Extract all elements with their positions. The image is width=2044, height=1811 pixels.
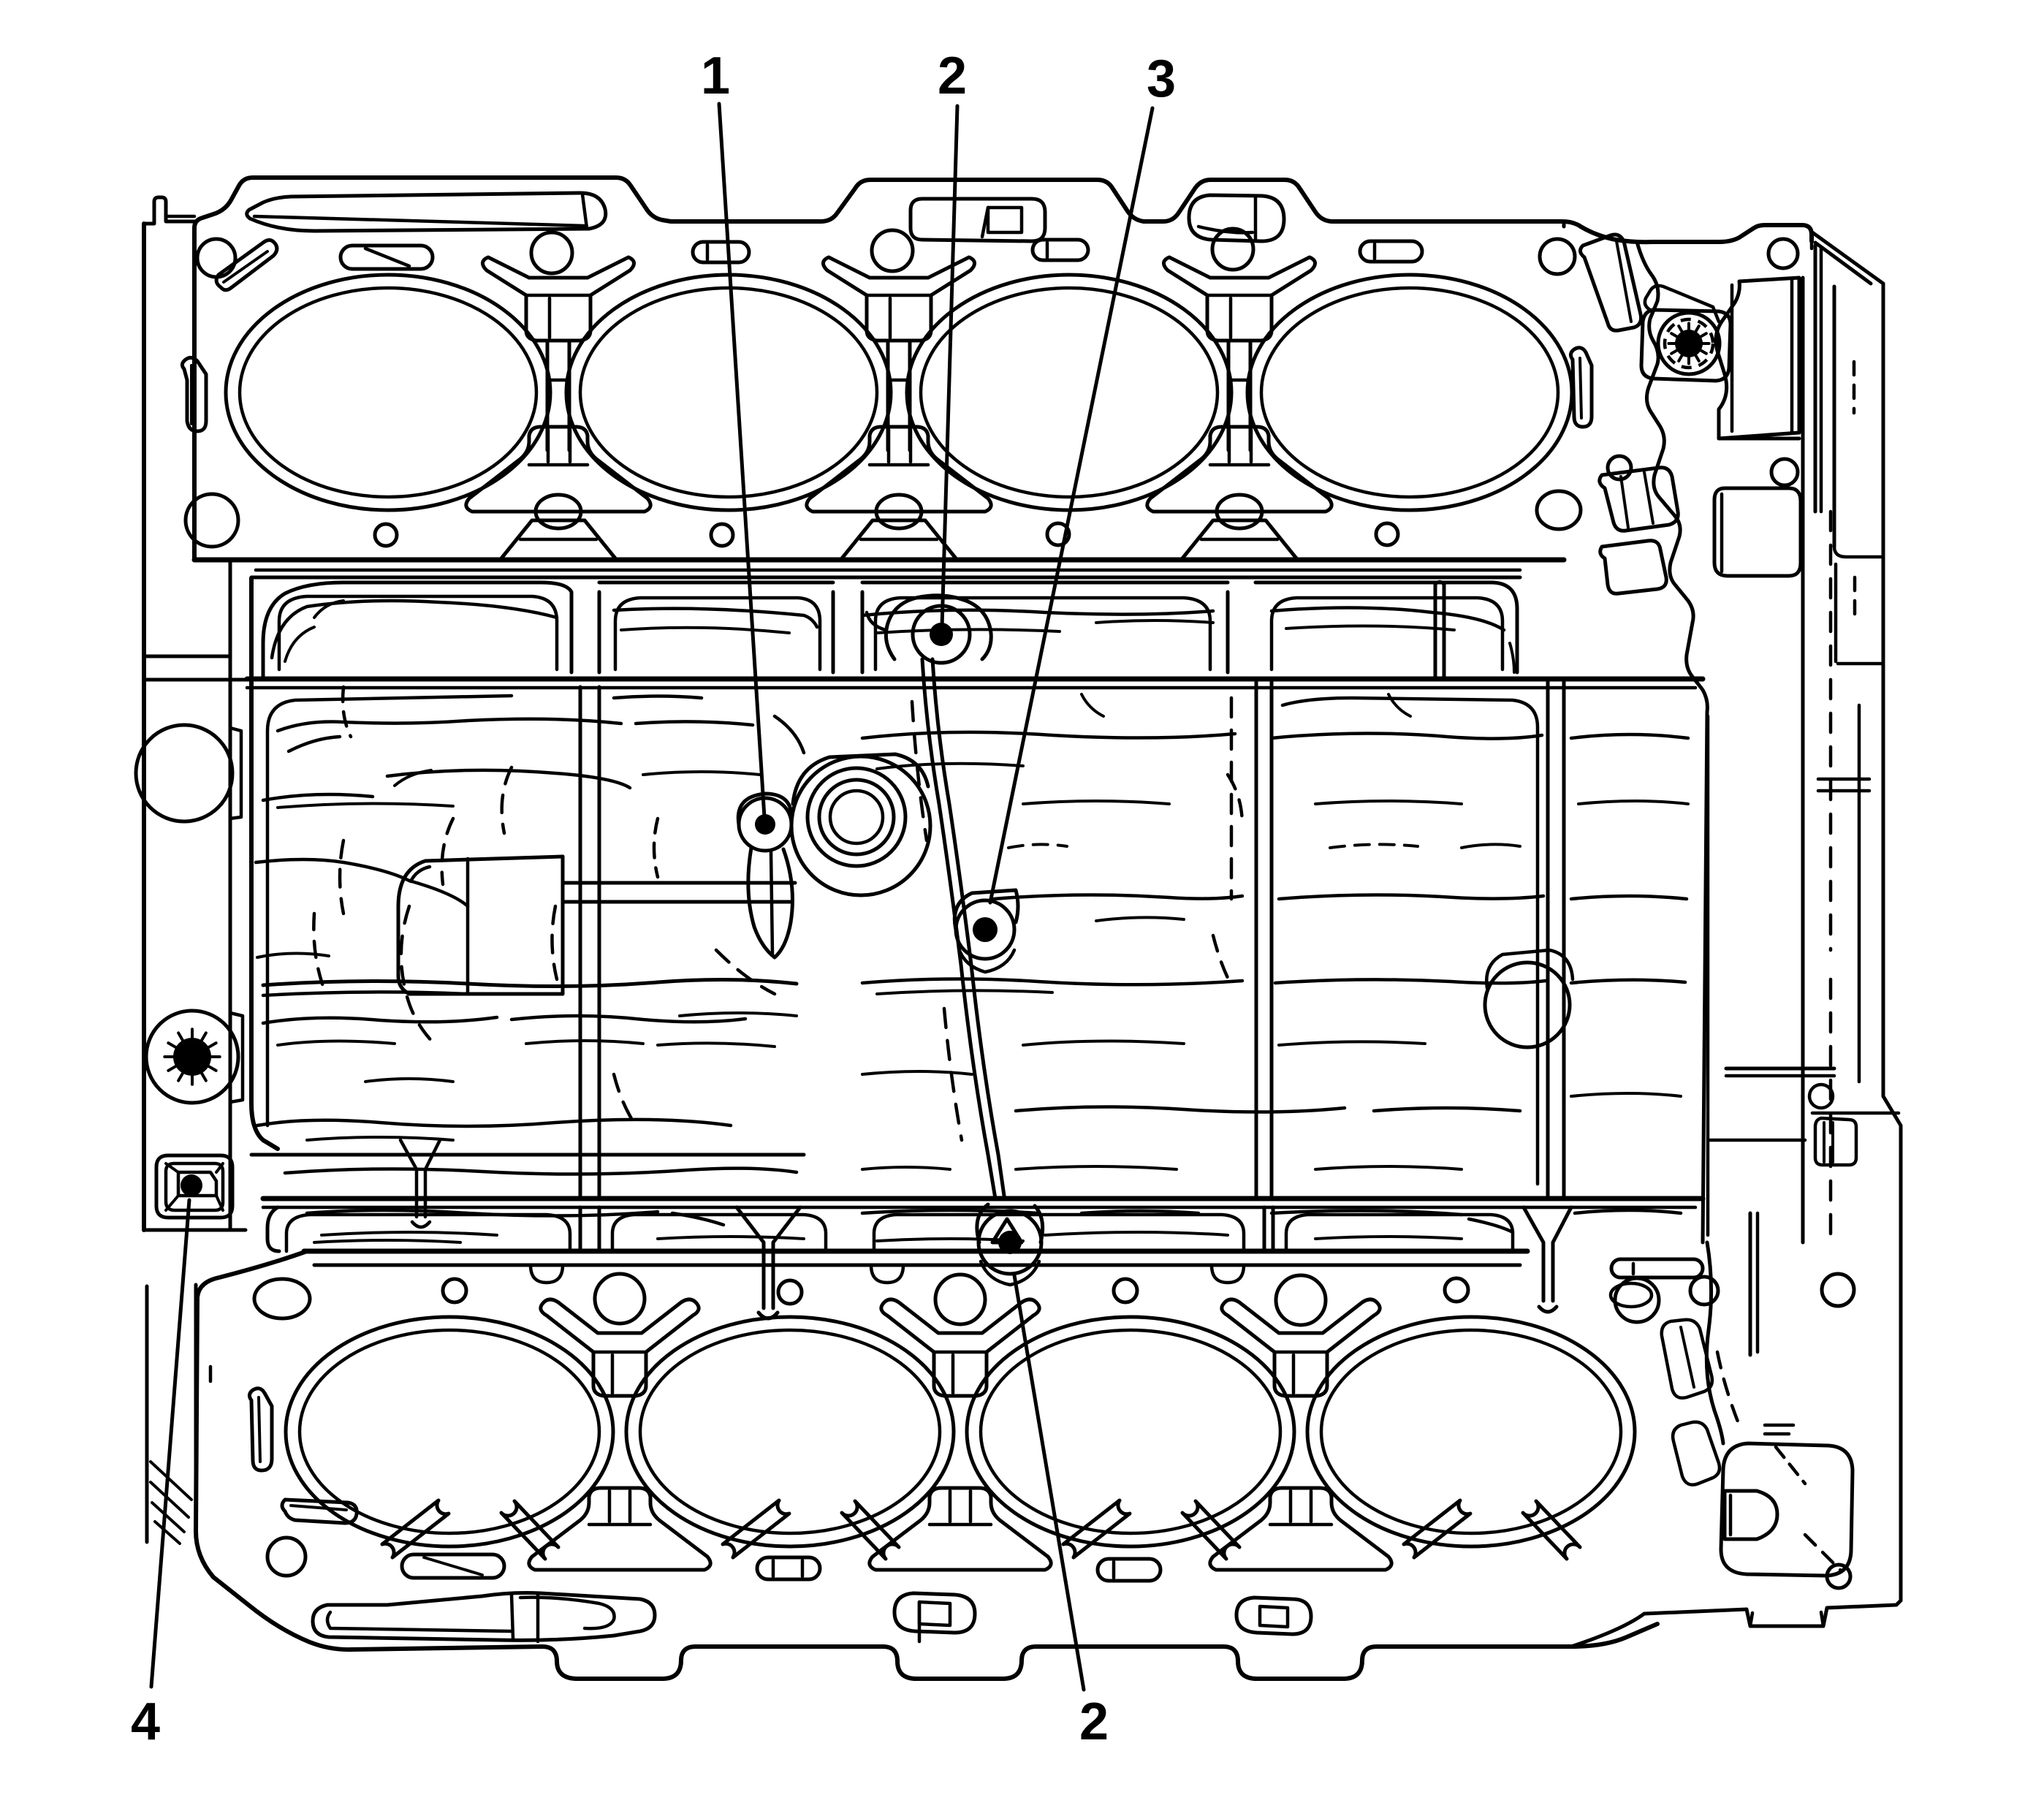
svg-text:2: 2 xyxy=(938,47,967,105)
svg-text:3: 3 xyxy=(1147,50,1176,108)
svg-text:4: 4 xyxy=(131,1693,160,1751)
svg-text:2: 2 xyxy=(1079,1693,1109,1751)
svg-text:1: 1 xyxy=(701,47,730,105)
